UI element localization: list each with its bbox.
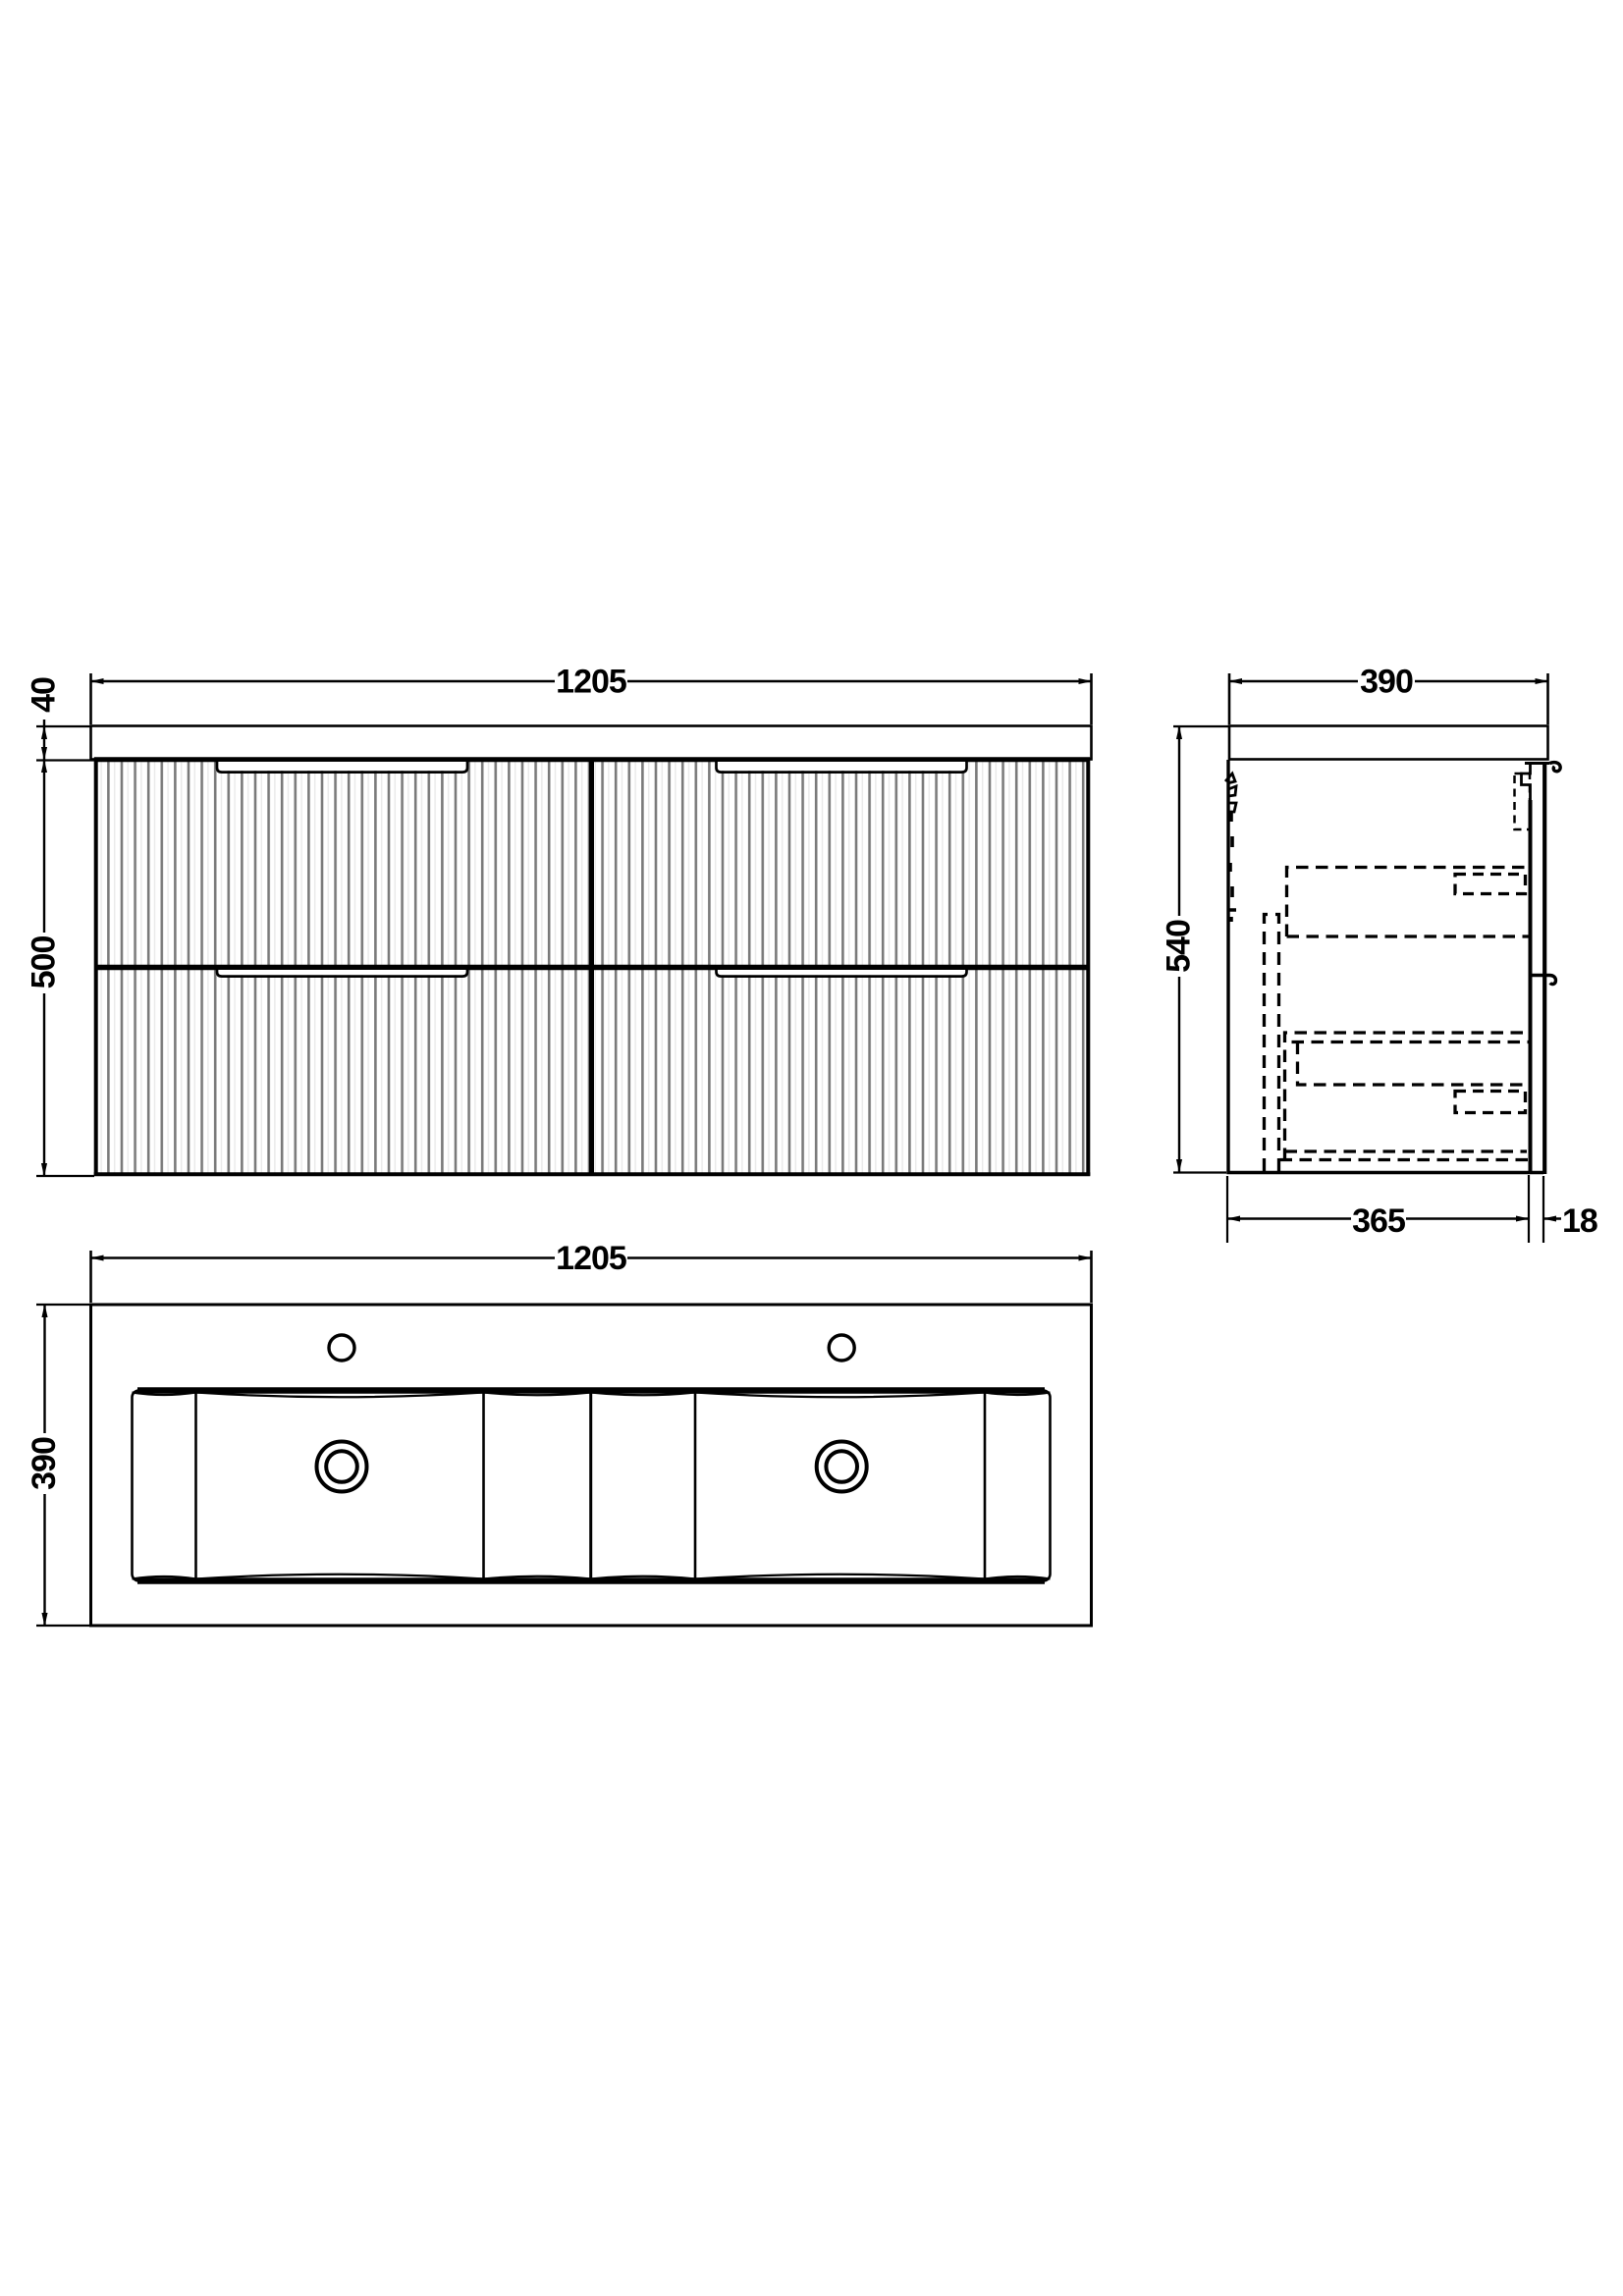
svg-text:18: 18 (1562, 1202, 1597, 1240)
svg-text:500: 500 (26, 936, 63, 989)
svg-text:1205: 1205 (556, 1240, 626, 1277)
svg-text:1205: 1205 (556, 664, 626, 701)
svg-text:390: 390 (26, 1437, 63, 1490)
svg-text:390: 390 (1360, 664, 1413, 701)
svg-text:540: 540 (1161, 920, 1198, 973)
svg-text:365: 365 (1352, 1202, 1405, 1240)
svg-text:40: 40 (26, 677, 63, 713)
